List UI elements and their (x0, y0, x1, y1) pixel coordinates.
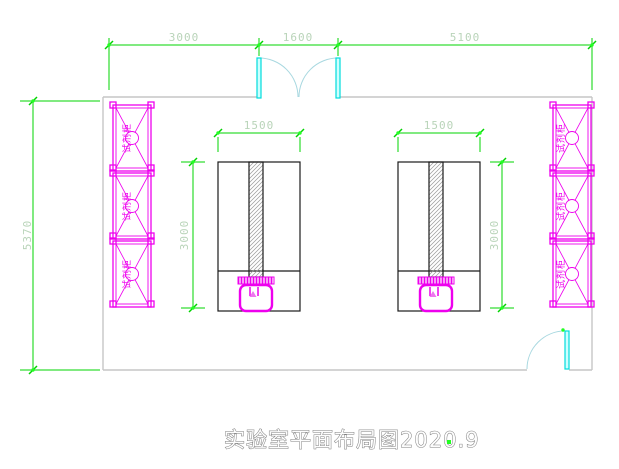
bench1-sink-basin (240, 285, 272, 311)
bench2-sink-grate (418, 277, 454, 284)
dim-ext-bench2-width (398, 137, 480, 152)
cabinet-label: 试剂柜 (555, 191, 567, 221)
dim-text-bench2-width: 1500 (424, 119, 455, 132)
cabinet-label: 试剂柜 (555, 123, 567, 153)
cabinet-knob (566, 200, 579, 213)
double-door-right-swing-arc (299, 58, 338, 97)
single-door-swing-arc (527, 331, 565, 369)
grip-dot (590, 43, 593, 46)
grip-dot (257, 43, 260, 46)
dim-text-top-1: 3000 (169, 31, 200, 44)
double-door-left-panel (257, 58, 261, 98)
grip-dot (107, 43, 110, 46)
dim-text-top-2: 1600 (283, 31, 314, 44)
grip-dot (396, 131, 399, 134)
dim-text-top-3: 5100 (450, 31, 481, 44)
cabinet-knob (566, 268, 579, 281)
bench2-center-shelf-strip (429, 162, 443, 277)
grip-dot (216, 131, 219, 134)
bench2-sink-basin (420, 285, 452, 311)
double-door-right-panel (336, 58, 340, 98)
dim-text-bench1-width: 1500 (244, 119, 275, 132)
grip-dot (191, 160, 194, 163)
grip-dot (500, 160, 503, 163)
double-door-left-swing-arc (259, 58, 298, 97)
room-walls (103, 97, 592, 370)
dimension-layer: 3000 1600 5100 5370 1500 1500 3000 3000 (20, 31, 596, 374)
door-panels (257, 58, 569, 369)
reagent-cabinets: 试剂柜 试剂柜 试剂柜 试剂柜 试剂柜 试剂柜 (110, 102, 594, 307)
grip-dot (478, 131, 481, 134)
door-arcs (259, 58, 565, 369)
grip-dot (31, 368, 34, 371)
grip-dot (298, 131, 301, 134)
grip-dot (500, 306, 503, 309)
dim-text-bench1-height: 3000 (178, 220, 191, 251)
floor-plan-drawing: 试剂柜 试剂柜 试剂柜 试剂柜 试剂柜 试剂柜 (0, 0, 619, 469)
dim-ext-top (109, 38, 592, 90)
bench1-sink-grate (238, 277, 274, 284)
dim-text-left-overall: 5370 (21, 220, 34, 251)
bench-end-fixtures (238, 277, 454, 311)
cabinet-labels: 试剂柜 试剂柜 试剂柜 试剂柜 试剂柜 试剂柜 (121, 123, 567, 289)
grip-dot (561, 328, 564, 331)
grip-dot (31, 99, 34, 102)
grip-dot (191, 306, 194, 309)
single-door-panel (565, 331, 569, 369)
bench1-sink-symbol (238, 277, 274, 311)
cabinet-label: 试剂柜 (121, 123, 133, 153)
dim-text-bench2-height: 3000 (488, 220, 501, 251)
drawing-title: 实验室平面布局图2020.9 (224, 428, 479, 452)
bench1-center-shelf-strip (249, 162, 263, 277)
cabinet-label: 试剂柜 (555, 259, 567, 289)
title-grip-dot (447, 440, 451, 444)
cabinet-label: 试剂柜 (121, 191, 133, 221)
dim-ticks (29, 41, 596, 374)
cabinet-label: 试剂柜 (121, 259, 133, 289)
dim-ext-bench1-width (218, 137, 300, 152)
bench2-sink-symbol (418, 277, 454, 311)
grip-dot (336, 43, 339, 46)
cabinet-knob (566, 132, 579, 145)
